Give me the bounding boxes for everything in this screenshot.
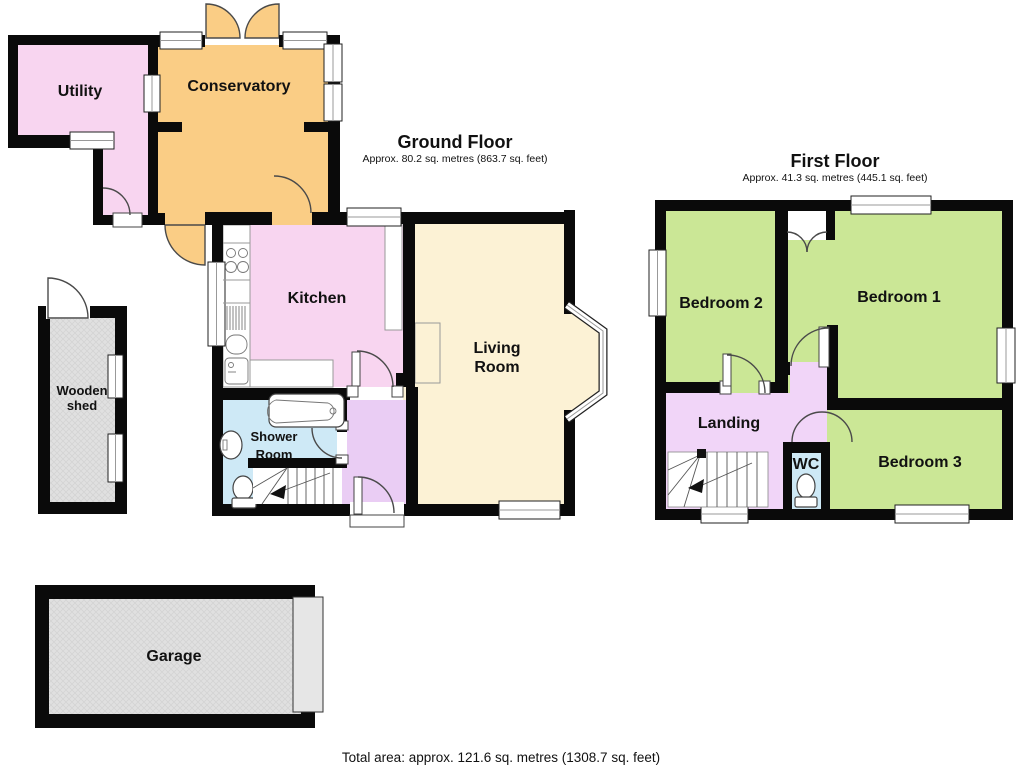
shower-room-label-1: Shower [251, 429, 298, 444]
conservatory-exterior-door-arc [165, 225, 205, 265]
kitchen-label: Kitchen [288, 290, 347, 307]
floorplan-page: Utility Conservatory Kitchen Living Room… [0, 0, 1024, 768]
staircase-first [668, 449, 768, 507]
shed-door-arc [48, 278, 88, 318]
garage-door [293, 597, 323, 712]
first-floor-title: First Floor [791, 151, 880, 171]
garage: Garage [35, 585, 323, 728]
french-door-left-leaf [206, 4, 240, 38]
cupboard-recess [788, 211, 826, 240]
living-room-label-2: Room [474, 359, 519, 376]
living-room-label-1: Living [473, 340, 520, 357]
garage-label: Garage [146, 648, 201, 665]
shed-label-2: shed [67, 398, 97, 413]
first-floor-plan: Bedroom 2 Bedroom 1 Bedroom 3 Landing WC [649, 196, 1015, 523]
kitchen-counter-right [385, 218, 402, 330]
hallway [342, 400, 406, 504]
basin-icon [220, 431, 242, 459]
shower-room-label-2: Room [256, 447, 293, 462]
bedroom3-label: Bedroom 3 [878, 454, 962, 471]
wc-label: WC [793, 456, 820, 473]
utility-label: Utility [58, 83, 103, 100]
bedroom1-label: Bedroom 1 [857, 289, 941, 306]
conservatory-label: Conservatory [187, 78, 290, 95]
bath-icon [267, 394, 344, 427]
utility-room [18, 45, 148, 215]
wooden-shed: Wooden shed [38, 278, 127, 514]
drainer-icon [227, 306, 245, 330]
ground-floor-subtitle: Approx. 80.2 sq. metres (863.7 sq. feet) [362, 153, 547, 165]
kitchen-counter-bottom [249, 360, 333, 387]
shed-label-1: Wooden [56, 383, 107, 398]
first-floor-subtitle: Approx. 41.3 sq. metres (445.1 sq. feet) [742, 172, 927, 184]
ground-floor-title: Ground Floor [398, 132, 513, 152]
wc-toilet-icon [795, 474, 817, 507]
living-room-niche [415, 323, 440, 383]
floorplan-canvas: Utility Conservatory Kitchen Living Room… [0, 0, 1024, 768]
french-door-right-leaf [245, 4, 279, 38]
landing-label: Landing [698, 415, 760, 432]
staircase-ground [253, 468, 342, 504]
bedroom2-label: Bedroom 2 [679, 295, 763, 312]
total-area-text: Total area: approx. 121.6 sq. metres (13… [342, 750, 660, 765]
conservatory-room [158, 45, 328, 225]
